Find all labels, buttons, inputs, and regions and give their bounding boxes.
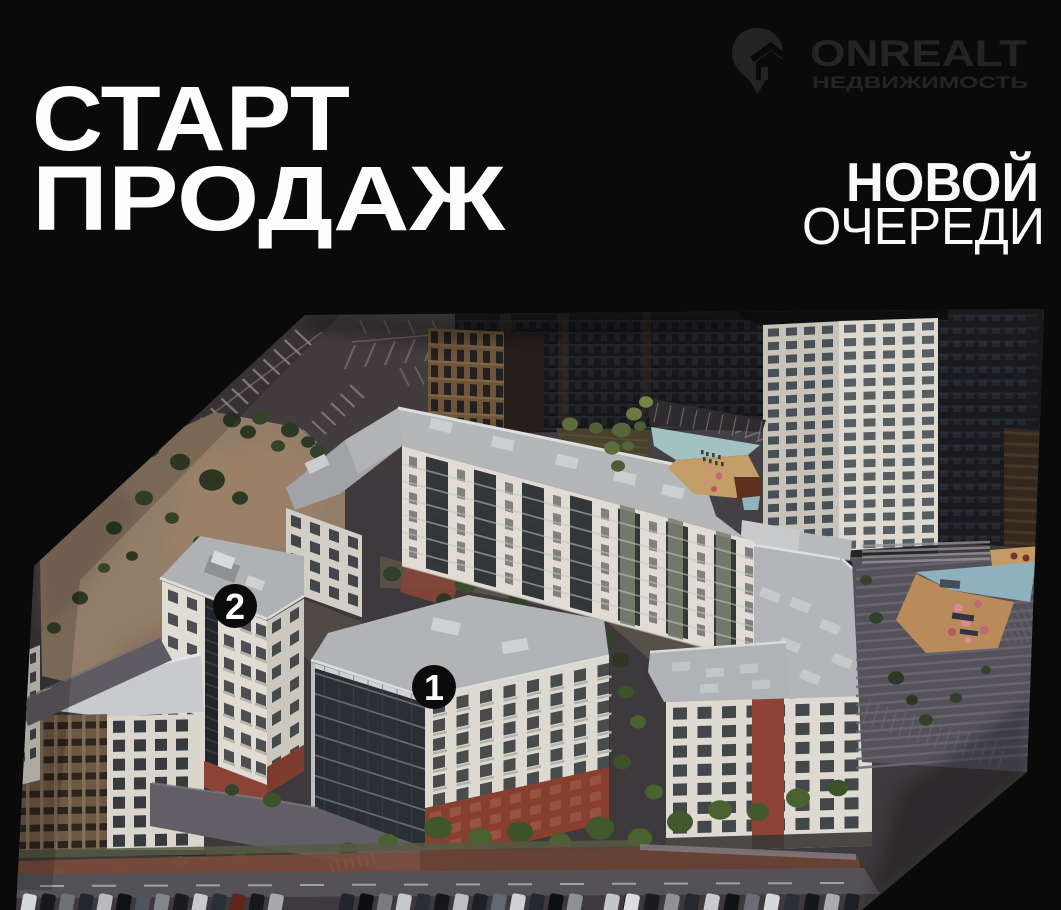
svg-text:1: 1	[424, 667, 444, 708]
svg-text:ONREALT: ONREALT	[810, 33, 1027, 74]
svg-text:ПРОДАЖ: ПРОДАЖ	[32, 148, 506, 250]
svg-text:2: 2	[225, 586, 245, 627]
svg-text:НЕДВИЖИМОСТЬ: НЕДВИЖИМОСТЬ	[812, 73, 1028, 92]
svg-text:ОЧЕРЕДИ: ОЧЕРЕДИ	[802, 198, 1045, 256]
